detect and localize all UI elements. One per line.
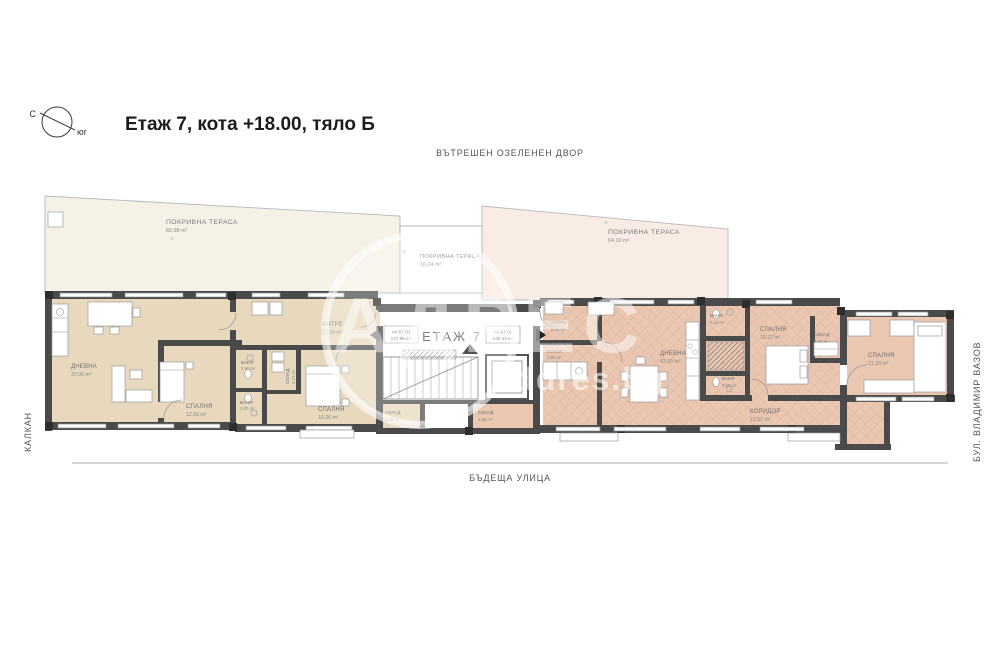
- room-area: 16.26 m²: [318, 415, 339, 421]
- room-name: СКЛАД: [478, 410, 494, 415]
- window: [118, 424, 174, 428]
- floor-plan-page: С юг Етаж 7, кота +18.00, тяло Б ВЪТРЕШЕ…: [0, 0, 1000, 666]
- dining-table: [88, 302, 132, 326]
- window: [760, 427, 804, 431]
- terrace-left-area: 66.98 m²: [166, 228, 187, 234]
- room-name: СПАЛНЯ: [760, 327, 787, 333]
- window: [58, 424, 106, 428]
- window: [614, 427, 666, 431]
- balcony-ledge: [560, 433, 618, 441]
- column: [837, 307, 845, 315]
- column: [229, 423, 237, 431]
- wall: [262, 348, 267, 424]
- room-name: СПАЛНЯ: [186, 404, 213, 410]
- sofa: [112, 366, 125, 402]
- label-kalkan: КАЛКАН: [23, 412, 33, 452]
- window: [700, 427, 740, 431]
- window: [246, 426, 286, 430]
- chair: [94, 327, 103, 334]
- window: [898, 312, 928, 316]
- room-name: СПАЛНЯ: [318, 407, 345, 413]
- terrace-mark: ×: [604, 220, 608, 227]
- room-area: 3.07 m²: [814, 339, 829, 344]
- compass-north-label: С: [30, 109, 37, 119]
- column: [465, 427, 473, 435]
- window: [668, 300, 694, 304]
- room-area: 12.69 m²: [186, 412, 207, 418]
- room-area: 2.90 m²: [241, 366, 256, 371]
- dresser: [864, 380, 914, 393]
- compass: С юг: [30, 107, 88, 137]
- wall: [810, 358, 845, 363]
- room-area: 16.22 m²: [760, 335, 781, 341]
- room-area: 5.22 m²: [710, 320, 725, 325]
- wall: [745, 306, 750, 395]
- wall: [947, 312, 954, 402]
- window: [125, 293, 183, 297]
- room-name: СКЛАД: [814, 332, 830, 337]
- room-name: БАНЯ: [722, 376, 735, 381]
- room-name: ДНЕВНА: [71, 364, 97, 370]
- terrace-right-area: 64.10 m²: [608, 238, 629, 244]
- bed: [160, 362, 184, 402]
- chair: [133, 308, 140, 317]
- wardrobe: [252, 302, 268, 315]
- wall: [230, 299, 236, 312]
- wall: [267, 390, 301, 394]
- room-name: КОРИДОР: [750, 409, 781, 415]
- nightstand: [186, 362, 193, 369]
- kitchen-appliances: [686, 322, 699, 400]
- window: [556, 427, 600, 431]
- chair: [110, 327, 119, 334]
- window: [252, 293, 280, 297]
- toilet-icon: [713, 378, 719, 387]
- wall: [296, 348, 301, 392]
- room-name: ДНЕВНА: [660, 351, 686, 357]
- wall: [840, 385, 847, 444]
- window: [60, 293, 112, 297]
- coffee-table: [130, 370, 142, 379]
- column: [742, 300, 750, 308]
- label-inner-yard: ВЪТРЕШЕН ОЗЕЛЕНЕН ДВОР: [436, 148, 584, 158]
- shelf: [272, 363, 284, 372]
- column: [697, 297, 705, 305]
- sofa: [126, 390, 152, 402]
- label-street: БЪДЕЩА УЛИЦА: [469, 473, 551, 483]
- wall: [45, 291, 52, 431]
- column: [228, 292, 236, 300]
- column: [45, 291, 53, 299]
- wall: [158, 340, 242, 346]
- window: [196, 293, 226, 297]
- window: [306, 426, 352, 430]
- watermark-site: addres.bg: [495, 361, 666, 397]
- column: [946, 311, 954, 319]
- wall: [700, 299, 706, 395]
- room-name: БАНЯ: [710, 313, 723, 318]
- column: [45, 422, 53, 430]
- room-name: СПАЛНЯ: [868, 353, 895, 359]
- wall: [700, 395, 752, 401]
- wardrobe: [270, 302, 282, 315]
- room-name: СКЛАД: [285, 368, 290, 384]
- floor-plan-svg: С юг Етаж 7, кота +18.00, тяло Б ВЪТРЕШЕ…: [0, 0, 1000, 666]
- window: [856, 312, 892, 316]
- compass-south-label: юг: [77, 127, 88, 137]
- balcony-ledge: [788, 433, 840, 441]
- wall: [840, 310, 847, 365]
- wall: [705, 336, 745, 341]
- terrace-left-label: ПОКРИВНА ТЕРАСА: [166, 219, 238, 226]
- window: [756, 300, 792, 304]
- window: [188, 424, 220, 428]
- room-name: БАНЯ: [241, 360, 254, 365]
- pillow: [800, 366, 807, 378]
- shelf: [272, 352, 284, 361]
- room-area: 37.06 m²: [71, 372, 92, 378]
- pillow: [800, 350, 807, 362]
- wall: [835, 444, 891, 450]
- room-area: 3.21 m²: [291, 369, 296, 384]
- page-title: Етаж 7, кота +18.00, тяло Б: [125, 114, 375, 135]
- pillow: [918, 326, 942, 336]
- room-area: 3.59 m²: [722, 383, 737, 388]
- wall: [884, 400, 890, 450]
- watermark-brand: АДРЕС: [332, 281, 647, 369]
- balcony-ledge: [300, 430, 354, 438]
- desk: [848, 320, 870, 336]
- wall: [236, 388, 267, 392]
- window: [902, 397, 934, 401]
- room-area: 10.52 m²: [750, 417, 771, 423]
- desk: [890, 320, 914, 336]
- kitchen-counter: [52, 304, 68, 356]
- column: [946, 394, 954, 402]
- compass-circle-icon: [42, 107, 72, 137]
- window: [856, 397, 896, 401]
- terrace-shaft: [48, 212, 63, 227]
- wardrobe: [708, 342, 744, 370]
- terrace-mark: ×: [170, 236, 174, 243]
- room-area: 21.28 m²: [868, 361, 889, 367]
- nightstand: [342, 399, 349, 406]
- wall: [768, 395, 845, 401]
- compass-needle-icon: [40, 113, 75, 130]
- room-name: БАНЯ: [240, 400, 253, 405]
- terrace-right-label: ПОКРИВНА ТЕРАСА: [608, 229, 680, 236]
- room-area: 2.98 m²: [478, 417, 493, 422]
- wall: [380, 428, 540, 434]
- label-blvd: БУЛ. ВЛАДИМИР ВАЗОВ: [972, 342, 982, 462]
- room-area: 2.00 m²: [240, 406, 255, 411]
